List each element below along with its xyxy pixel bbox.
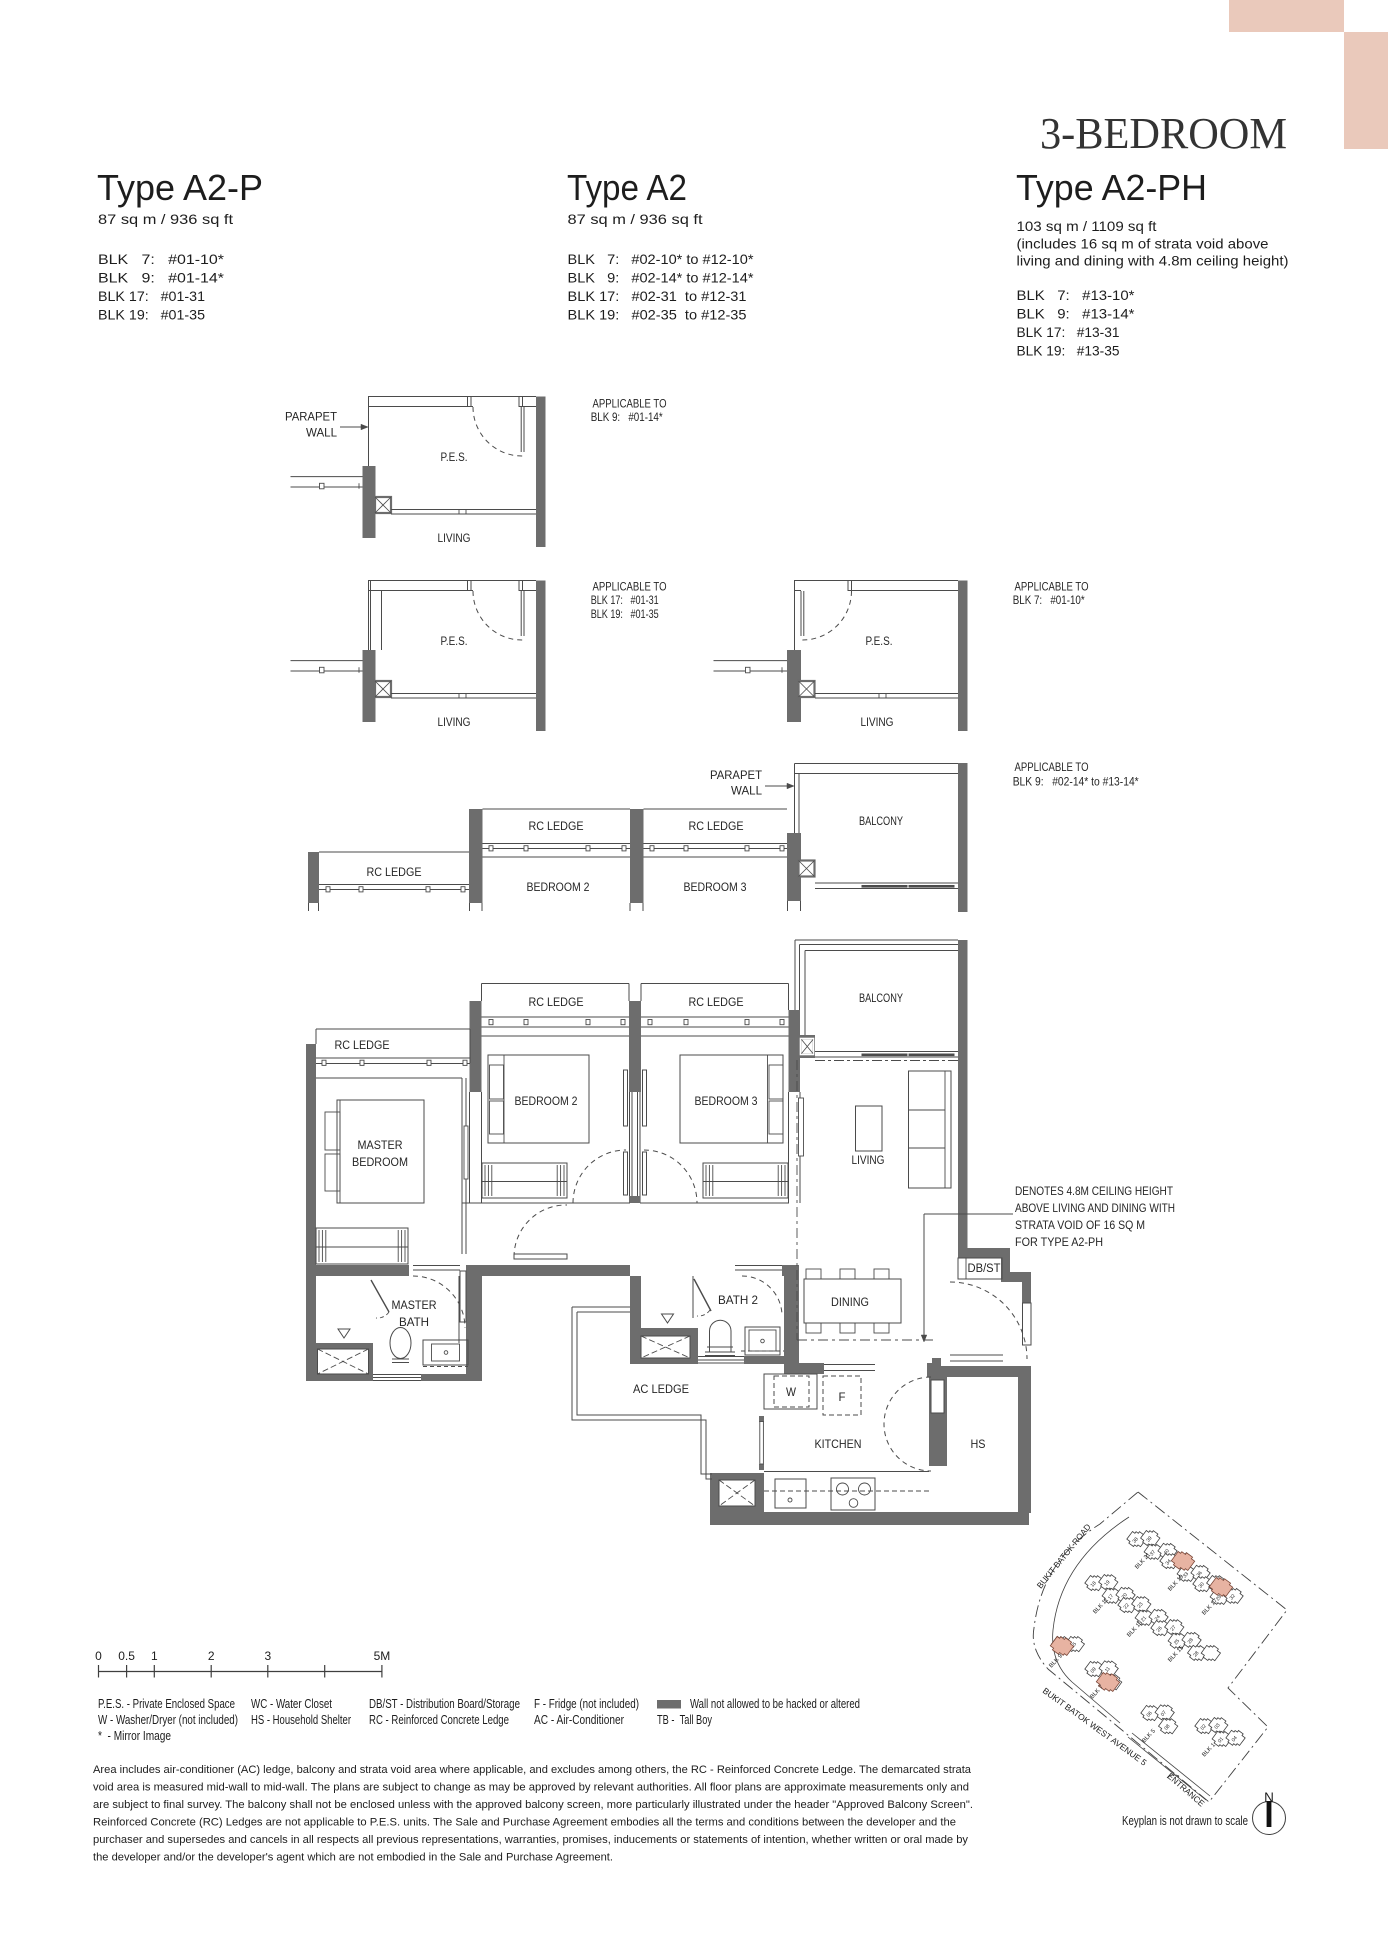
- svg-text:purchaser and supersedes and c: purchaser and supersedes and cancels in …: [93, 1834, 968, 1846]
- svg-text:3: 3: [264, 1649, 271, 1663]
- svg-text:3-BEDROOM: 3-BEDROOM: [1040, 109, 1287, 158]
- svg-text:BLK 19: #02-35 to #12-35: BLK 19: #02-35 to #12-35: [568, 307, 747, 323]
- svg-text:P.E.S. - Private Enclosed Spac: P.E.S. - Private Enclosed Space: [98, 1697, 235, 1711]
- svg-text:P.E.S.: P.E.S.: [866, 634, 893, 648]
- svg-text:void area is measured mid-wall: void area is measured mid-wall to mid-wa…: [93, 1782, 969, 1794]
- svg-text:N: N: [1264, 1790, 1274, 1805]
- svg-text:APPLICABLE TO: APPLICABLE TO: [1015, 760, 1089, 774]
- svg-text:BLK 19: #01-35: BLK 19: #01-35: [98, 307, 205, 323]
- svg-text:APPLICABLE TO: APPLICABLE TO: [593, 396, 667, 410]
- svg-text:STRATA VOID OF 16 SQ M: STRATA VOID OF 16 SQ M: [1015, 1218, 1145, 1232]
- svg-text:are subject to final survey. T: are subject to final survey. The balcony…: [93, 1799, 973, 1811]
- svg-text:BLK 19: #01-35: BLK 19: #01-35: [591, 607, 659, 621]
- svg-text:BEDROOM 2: BEDROOM 2: [527, 880, 590, 894]
- svg-text:P.E.S.: P.E.S.: [441, 450, 468, 464]
- svg-text:LIVING: LIVING: [861, 715, 894, 729]
- svg-text:PARAPET: PARAPET: [285, 412, 337, 424]
- svg-text:RC LEDGE: RC LEDGE: [529, 819, 584, 833]
- svg-text:BLK 9: #01-14*: BLK 9: #01-14*: [98, 270, 225, 286]
- svg-text:RC - Reinforced Concrete Ledge: RC - Reinforced Concrete Ledge: [369, 1713, 509, 1727]
- svg-text:LIVING: LIVING: [852, 1153, 885, 1167]
- svg-text:RC LEDGE: RC LEDGE: [689, 819, 744, 833]
- svg-text:HS: HS: [971, 1437, 986, 1451]
- svg-text:BALCONY: BALCONY: [859, 991, 903, 1005]
- svg-text:DENOTES 4.8M CEILING HEIGHT: DENOTES 4.8M CEILING HEIGHT: [1015, 1184, 1174, 1198]
- svg-text:MASTER: MASTER: [392, 1298, 437, 1312]
- svg-text:the developer and/or the devel: the developer and/or the developer's age…: [93, 1852, 613, 1864]
- svg-text:Wall not allowed to be hacked: Wall not allowed to be hacked or altered: [690, 1697, 860, 1711]
- svg-text:103 sq m / 1109 sq ft: 103 sq m / 1109 sq ft: [1017, 218, 1157, 234]
- svg-text:1: 1: [151, 1649, 158, 1663]
- svg-text:(includes 16 sq m of strata vo: (includes 16 sq m of strata void above: [1017, 235, 1269, 251]
- svg-text:BLK 7: #01-10*: BLK 7: #01-10*: [1013, 593, 1085, 607]
- svg-text:* - Mirror Image: * - Mirror Image: [98, 1729, 171, 1743]
- svg-text:BEDROOM: BEDROOM: [352, 1155, 408, 1169]
- svg-text:BLK 17: #13-31: BLK 17: #13-31: [1017, 324, 1120, 340]
- svg-text:0.5: 0.5: [118, 1649, 135, 1663]
- svg-text:RC LEDGE: RC LEDGE: [529, 995, 584, 1009]
- svg-text:BLK 9: #01-14*: BLK 9: #01-14*: [591, 410, 663, 424]
- svg-text:AC LEDGE: AC LEDGE: [633, 1382, 689, 1396]
- svg-text:F - Fridge (not included): F - Fridge (not included): [534, 1697, 639, 1711]
- svg-text:LIVING: LIVING: [438, 531, 471, 545]
- svg-text:WC - Water Closet: WC - Water Closet: [251, 1697, 332, 1711]
- svg-text:2: 2: [208, 1649, 215, 1663]
- svg-text:APPLICABLE TO: APPLICABLE TO: [1015, 579, 1089, 593]
- svg-text:HS - Household Shelter: HS - Household Shelter: [251, 1713, 351, 1727]
- svg-text:Type A2-P: Type A2-P: [97, 167, 263, 208]
- svg-text:Area includes air-conditioner: Area includes air-conditioner (AC) ledge…: [93, 1764, 972, 1776]
- svg-text:Reinforced Concrete (RC) Ledge: Reinforced Concrete (RC) Ledges are not …: [93, 1817, 956, 1829]
- svg-text:LIVING: LIVING: [438, 715, 471, 729]
- svg-text:DB/ST: DB/ST: [968, 1263, 1001, 1275]
- svg-text:BATH: BATH: [399, 1315, 429, 1329]
- svg-text:BLK 17: #01-31: BLK 17: #01-31: [591, 593, 659, 607]
- svg-text:BLK 7: #01-10*: BLK 7: #01-10*: [98, 251, 225, 267]
- svg-text:RC LEDGE: RC LEDGE: [689, 995, 744, 1009]
- svg-text:Type A2: Type A2: [567, 167, 687, 208]
- svg-text:BLK 17: #01-31: BLK 17: #01-31: [98, 288, 205, 304]
- svg-text:BLK 19: #13-35: BLK 19: #13-35: [1017, 342, 1120, 358]
- svg-text:P.E.S.: P.E.S.: [441, 634, 468, 648]
- svg-text:BLK 7: #02-10* to #12-10*: BLK 7: #02-10* to #12-10*: [568, 251, 755, 267]
- svg-text:FOR TYPE A2-PH: FOR TYPE A2-PH: [1015, 1235, 1103, 1249]
- svg-text:87 sq m / 936 sq ft: 87 sq m / 936 sq ft: [568, 211, 703, 227]
- svg-text:RC LEDGE: RC LEDGE: [335, 1038, 390, 1052]
- svg-text:87 sq m / 936 sq ft: 87 sq m / 936 sq ft: [98, 211, 233, 227]
- svg-text:WALL: WALL: [731, 786, 763, 798]
- svg-text:WALL: WALL: [306, 428, 338, 440]
- svg-text:ABOVE LIVING AND DINING WITH: ABOVE LIVING AND DINING WITH: [1015, 1201, 1175, 1215]
- svg-text:Type A2-PH: Type A2-PH: [1016, 167, 1207, 208]
- svg-text:BLK 17: #02-31 to #12-31: BLK 17: #02-31 to #12-31: [568, 288, 747, 304]
- svg-text:BLK 9: #13-14*: BLK 9: #13-14*: [1017, 306, 1136, 322]
- svg-text:BLK 9: #02-14* to #13-14*: BLK 9: #02-14* to #13-14*: [1013, 775, 1139, 789]
- svg-text:BEDROOM 3: BEDROOM 3: [684, 880, 747, 894]
- svg-text:BATH 2: BATH 2: [718, 1293, 758, 1307]
- svg-text:BEDROOM 3: BEDROOM 3: [695, 1094, 758, 1108]
- svg-text:BALCONY: BALCONY: [859, 814, 903, 828]
- svg-text:5M: 5M: [374, 1649, 391, 1663]
- svg-text:BEDROOM 2: BEDROOM 2: [515, 1094, 578, 1108]
- svg-text:MASTER: MASTER: [358, 1138, 403, 1152]
- svg-text:RC LEDGE: RC LEDGE: [367, 865, 422, 879]
- svg-text:TB - Tall Boy: TB - Tall Boy: [657, 1713, 713, 1727]
- svg-text:BLK 9: #02-14* to #12-14*: BLK 9: #02-14* to #12-14*: [568, 270, 755, 286]
- svg-text:PARAPET: PARAPET: [710, 770, 762, 782]
- svg-text:Keyplan is not drawn to scale: Keyplan is not drawn to scale: [1122, 1813, 1248, 1828]
- svg-text:0: 0: [95, 1649, 102, 1663]
- svg-text:W - Washer/Dryer (not included: W - Washer/Dryer (not included): [98, 1713, 238, 1727]
- svg-text:living and dining with 4.8m ce: living and dining with 4.8m ceiling heig…: [1017, 253, 1289, 269]
- svg-text:AC - Air-Conditioner: AC - Air-Conditioner: [534, 1713, 624, 1727]
- svg-text:KITCHEN: KITCHEN: [815, 1437, 862, 1451]
- svg-text:DB/ST - Distribution Board/Sto: DB/ST - Distribution Board/Storage: [369, 1697, 520, 1711]
- svg-text:F: F: [839, 1390, 846, 1404]
- svg-text:W: W: [786, 1385, 797, 1399]
- svg-text:DINING: DINING: [831, 1295, 869, 1309]
- svg-text:APPLICABLE TO: APPLICABLE TO: [593, 579, 667, 593]
- svg-text:BLK 7: #13-10*: BLK 7: #13-10*: [1017, 287, 1136, 303]
